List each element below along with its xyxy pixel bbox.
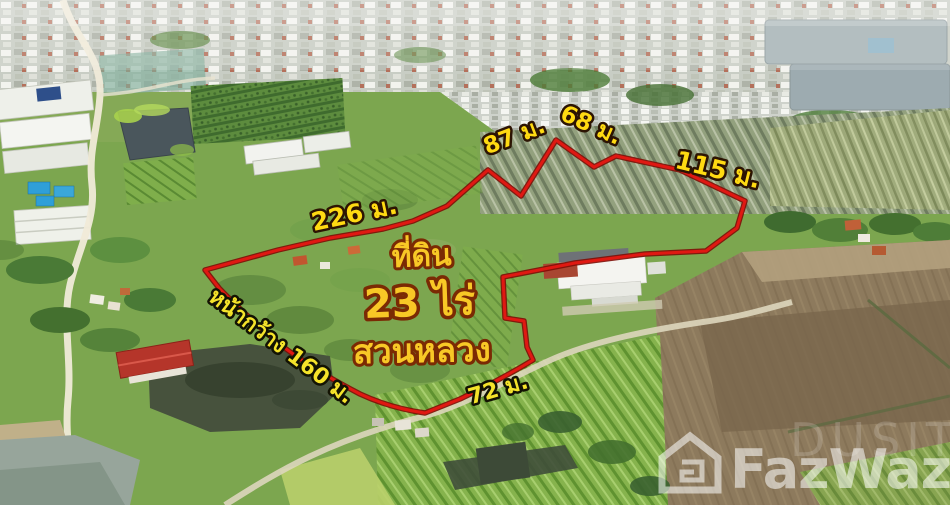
plot-title-line3: สวนหลวง — [353, 330, 492, 371]
plot-title-line1: ที่ดิน — [391, 233, 453, 275]
aerial-photo: 226 ม. 87 ม. 68 ม. 115 ม. หน้ากว้าง 160 … — [0, 0, 950, 505]
plot-title-line2: 23 ไร่ — [363, 277, 476, 328]
fazwaz-logo-text: FazWaz — [730, 438, 950, 501]
land-listing-photo: 226 ม. 87 ม. 68 ม. 115 ม. หน้ากว้าง 160 … — [0, 0, 950, 505]
haze-top — [0, 0, 950, 26]
